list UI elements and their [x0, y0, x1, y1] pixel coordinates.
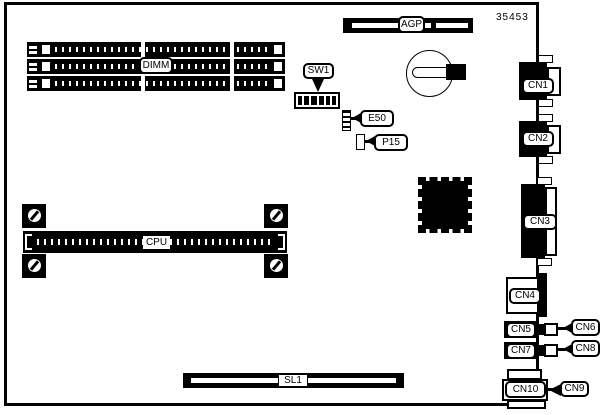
- dimm-slot-3-latch-right: [274, 79, 282, 88]
- cpu-slot-end-left: [25, 234, 32, 250]
- cn3-tab-bottom: [537, 258, 552, 266]
- cn5-stub: [537, 324, 544, 335]
- dimm-slot-3-body: [39, 76, 285, 91]
- dimm-slot-1: [27, 42, 285, 57]
- agp-slot: AGP: [343, 18, 473, 33]
- sw1-label: SW1: [303, 63, 334, 79]
- cn6-port: [544, 323, 558, 336]
- screw-icon: [270, 209, 283, 222]
- agp-label: AGP: [398, 16, 425, 33]
- cn2-tab-bottom: [538, 156, 553, 164]
- cn1-tab-top: [538, 55, 553, 63]
- cn2-label: CN2: [522, 131, 554, 147]
- sl1-slot: SL1: [183, 373, 404, 388]
- dimm-slot-3-notch-2: [230, 76, 234, 91]
- sl1-segment-2: [308, 378, 396, 383]
- dimm-slot-2-latch-right: [274, 62, 282, 71]
- sw1-pointer: [312, 79, 324, 92]
- agp-slot-segment-3: [436, 23, 468, 28]
- screw-icon: [270, 259, 283, 272]
- dimm-slot-1-pins: [55, 47, 269, 52]
- e50-jumper: [342, 110, 351, 131]
- cpu-mount-top-left: [22, 204, 46, 228]
- dimm-slot-3-cap: [27, 76, 39, 91]
- cn1-label: CN1: [522, 78, 554, 94]
- cn3-tab-top: [537, 177, 552, 185]
- cn7-stub: [537, 345, 544, 356]
- cn9-label: CN9: [560, 381, 589, 397]
- battery-key: [412, 67, 450, 78]
- cpu-mount-bottom-right: [264, 254, 288, 278]
- cn7-label: CN7: [507, 344, 535, 358]
- sw1-switch-segments: [296, 94, 338, 107]
- asic-chip: [418, 177, 472, 233]
- dimm-label: DIMM: [139, 57, 173, 74]
- dimm-slot-3: [27, 76, 285, 91]
- sw1-dip-switch: [294, 92, 340, 109]
- dimm-slot-3-pins: [55, 81, 269, 86]
- cn4-label: CN4: [509, 288, 541, 304]
- dimm-slot-2-cap: [27, 59, 39, 74]
- cpu-label: CPU: [143, 236, 170, 249]
- cn3-label: CN3: [523, 214, 557, 230]
- cpu-mount-bottom-left: [22, 254, 46, 278]
- motherboard-diagram: 35453 DIMM: [0, 0, 603, 415]
- sl1-label: SL1: [278, 374, 308, 387]
- dimm-slot-2-latch-left: [42, 62, 50, 71]
- cn8-port: [544, 344, 558, 357]
- dimm-slot-3-notch-1: [141, 76, 145, 91]
- screw-icon: [28, 209, 41, 222]
- dimm-slot-1-notch-2: [230, 42, 234, 57]
- agp-slot-segment-1: [352, 23, 400, 28]
- dimm-slot-2-notch-2: [230, 59, 234, 74]
- cn8-label: CN8: [571, 340, 600, 357]
- dimm-slot-3-latch-left: [42, 79, 50, 88]
- dimm-slot-1-latch-left: [42, 45, 50, 54]
- dimm-slot-1-cap: [27, 42, 39, 57]
- cpu-slot: CPU: [22, 204, 288, 278]
- cn10-label: CN10: [505, 381, 546, 398]
- dimm-slot-1-body: [39, 42, 285, 57]
- cn10-bottom: [507, 400, 546, 409]
- cpu-mount-top-right: [264, 204, 288, 228]
- cn2-tab-top: [538, 114, 553, 122]
- dimm-slot-1-latch-right: [274, 45, 282, 54]
- cpu-slot-end-right: [278, 234, 285, 250]
- e50-label: E50: [360, 110, 394, 127]
- cn1-tab-bottom: [538, 99, 553, 107]
- battery-clip: [446, 64, 466, 80]
- part-number: 35453: [496, 12, 529, 23]
- cn6-label: CN6: [571, 319, 600, 336]
- dimm-slot-1-notch-1: [141, 42, 145, 57]
- p15-label: P15: [374, 134, 408, 151]
- cn5-label: CN5: [507, 323, 535, 337]
- screw-icon: [28, 259, 41, 272]
- sl1-segment-1: [191, 378, 280, 383]
